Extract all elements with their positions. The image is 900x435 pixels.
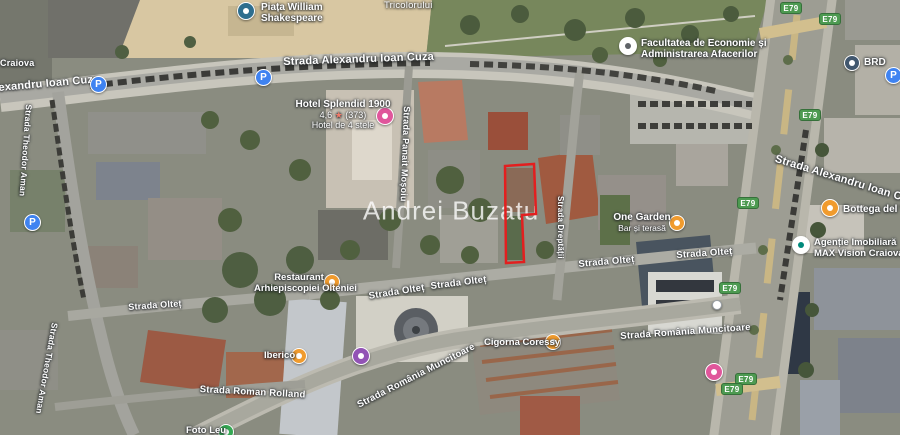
- highlighted-parcel-outline: [0, 0, 900, 435]
- satellite-map-view: Andrei Buzatu Craiova exandru Ioan Cuza …: [0, 0, 900, 435]
- parcel-polygon: [505, 164, 536, 263]
